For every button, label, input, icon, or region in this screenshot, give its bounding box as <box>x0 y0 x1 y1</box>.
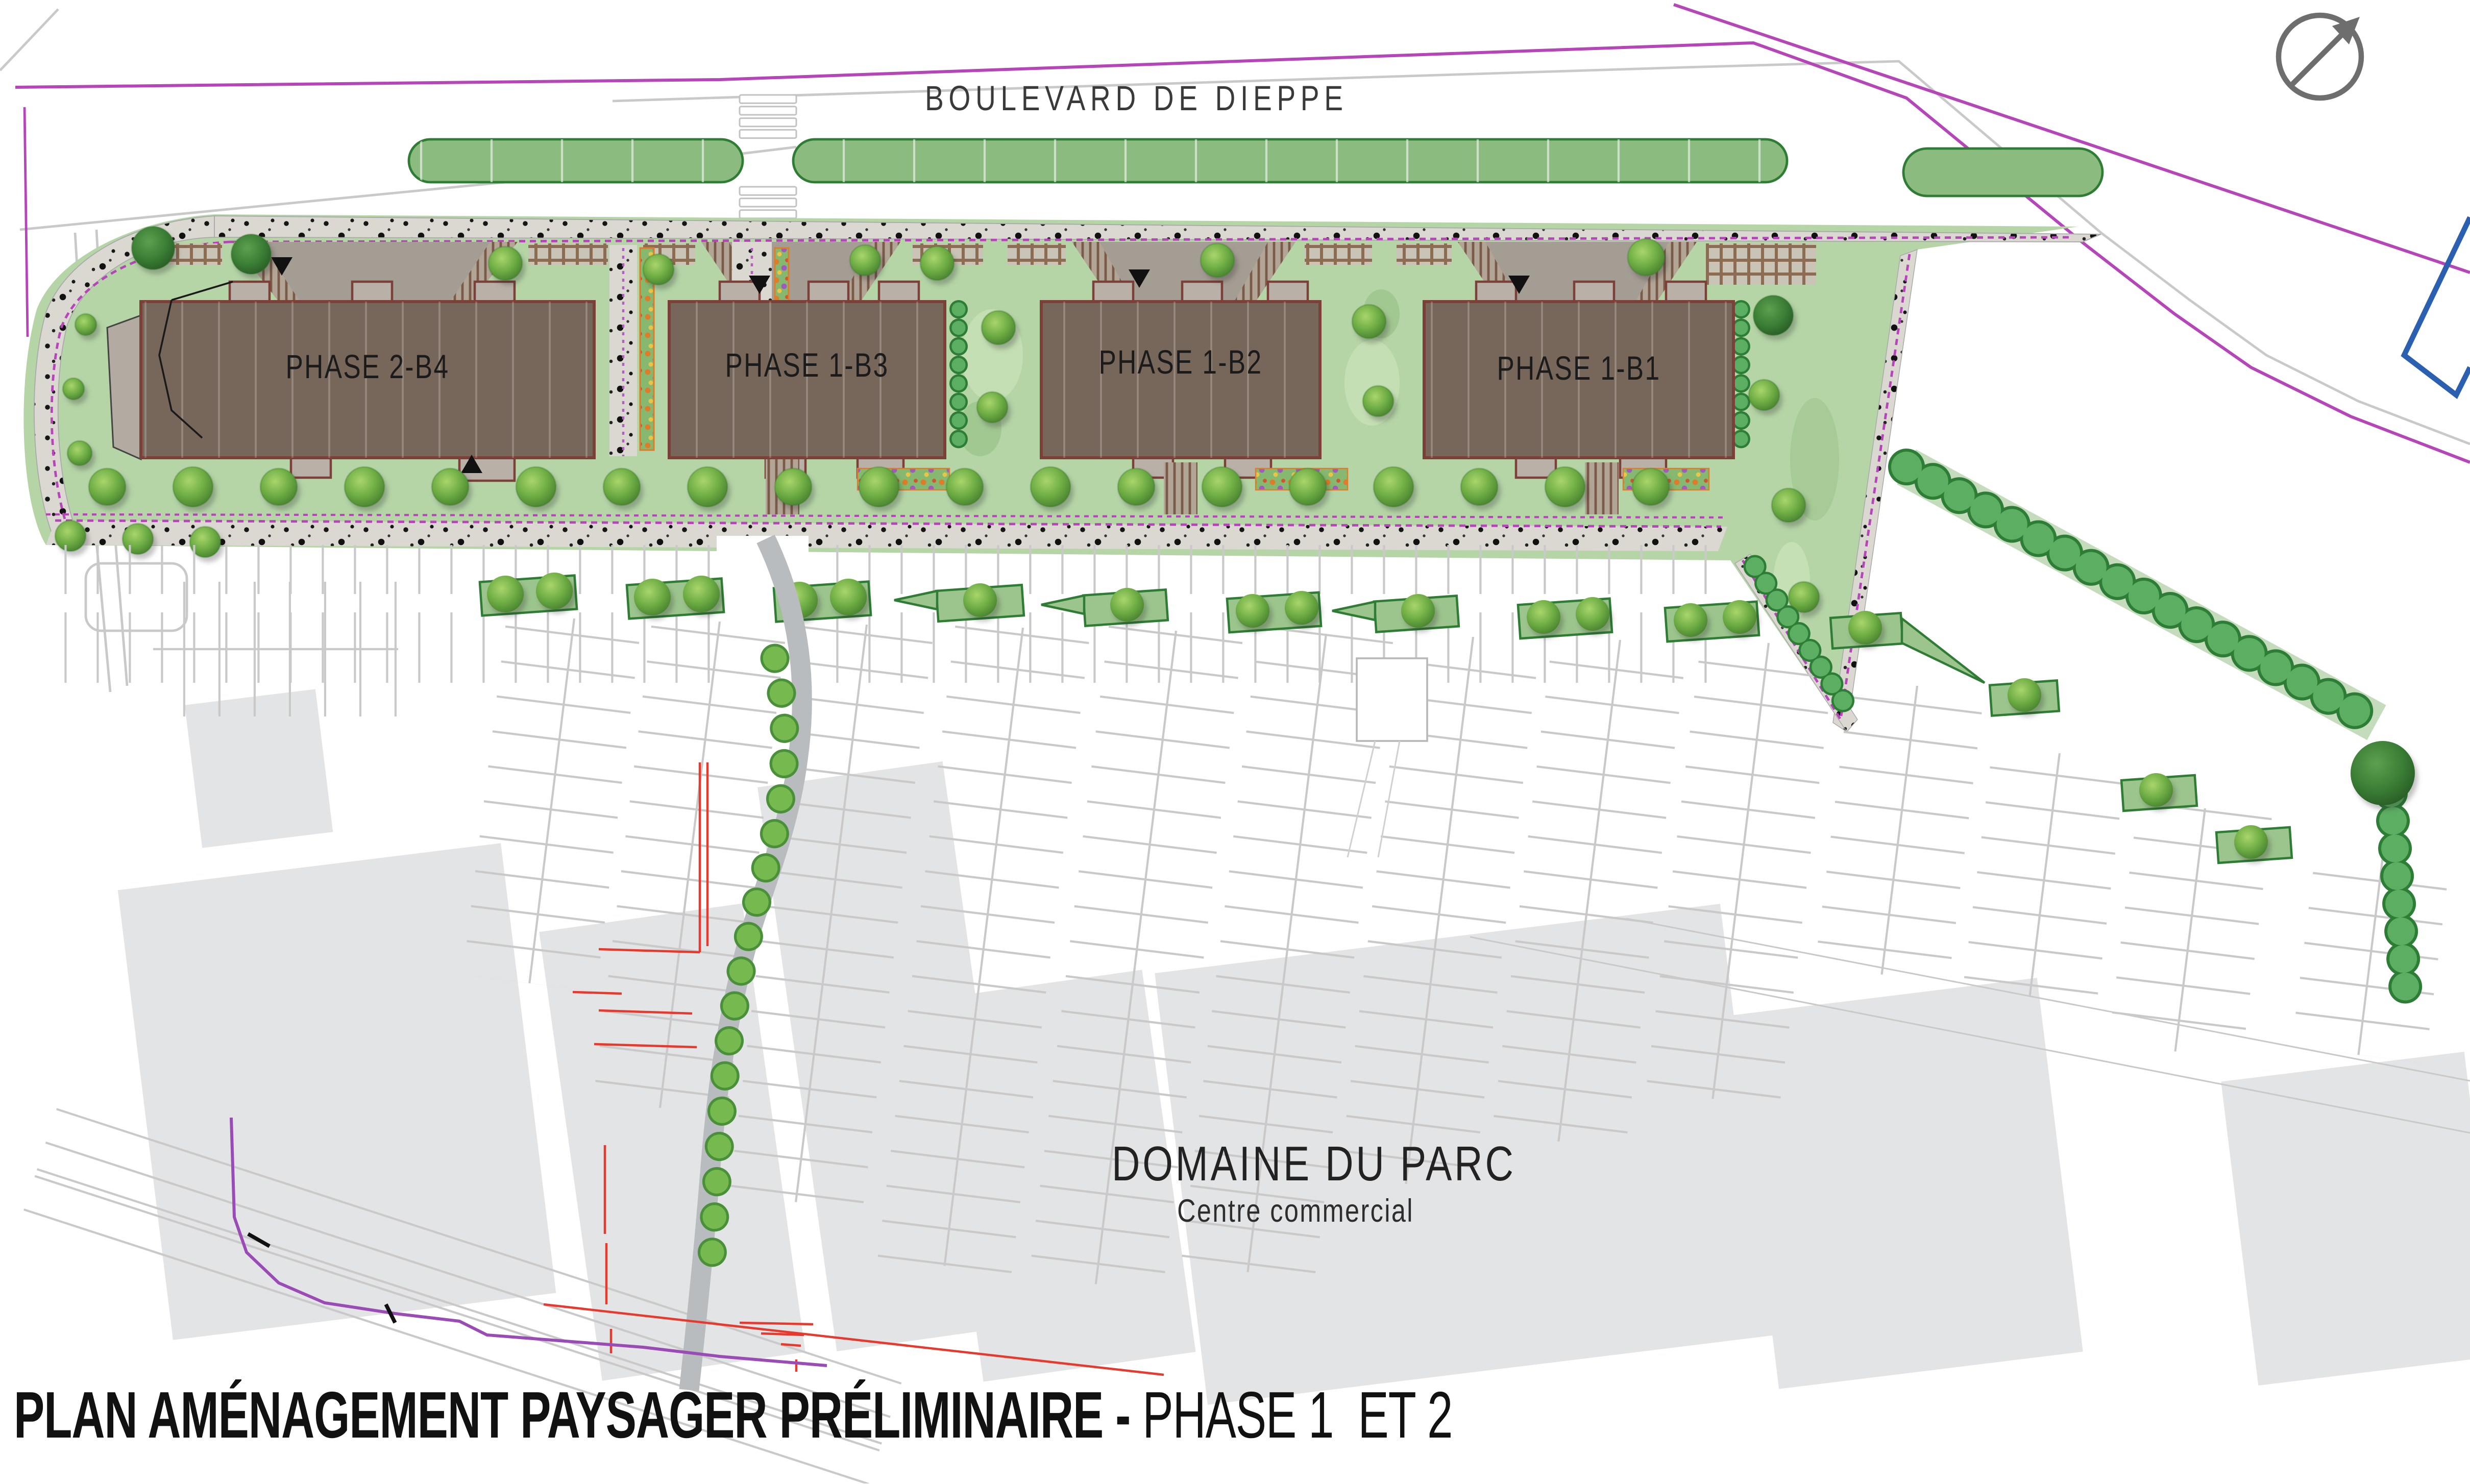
north-arrow-icon <box>2279 15 2361 98</box>
crosswalk <box>740 95 796 230</box>
site-plan-svg <box>0 0 2470 1484</box>
plan-title: PLAN AMÉNAGEMENT PAYSAGER PRÉLIMINAIRE -… <box>14 1379 1452 1454</box>
building-b3-label: PHASE 1-B3 <box>705 346 909 386</box>
building-b4-annex <box>107 315 141 459</box>
plan-canvas: BOULEVARD DE DIEPPE PHASE 2-B4 PHASE 1-B… <box>0 0 2470 1484</box>
page: BOULEVARD DE DIEPPE PHASE 2-B4 PHASE 1-B… <box>0 0 2470 1484</box>
commercial-center-subtitle: Centre commercial <box>1112 1194 1479 1231</box>
plan-title-phase: PHASE 1 ET 2 <box>1142 1379 1452 1453</box>
building-b1-label: PHASE 1-B1 <box>1477 349 1680 389</box>
building-b2-label: PHASE 1-B2 <box>1079 343 1282 383</box>
survey-rectangle <box>2404 217 2470 395</box>
large-tree <box>2351 741 2415 805</box>
boulevard-median <box>409 139 2102 196</box>
street-name: BOULEVARD DE DIEPPE <box>925 78 1268 119</box>
reserved-stall-outline <box>1357 658 1427 741</box>
building-b4-label: PHASE 2-B4 <box>266 348 469 387</box>
median-pill <box>1903 149 2102 196</box>
commercial-center-name: DOMAINE DU PARC <box>1112 1136 1479 1193</box>
plan-title-main: PLAN AMÉNAGEMENT PAYSAGER PRÉLIMINAIRE - <box>14 1379 1142 1453</box>
